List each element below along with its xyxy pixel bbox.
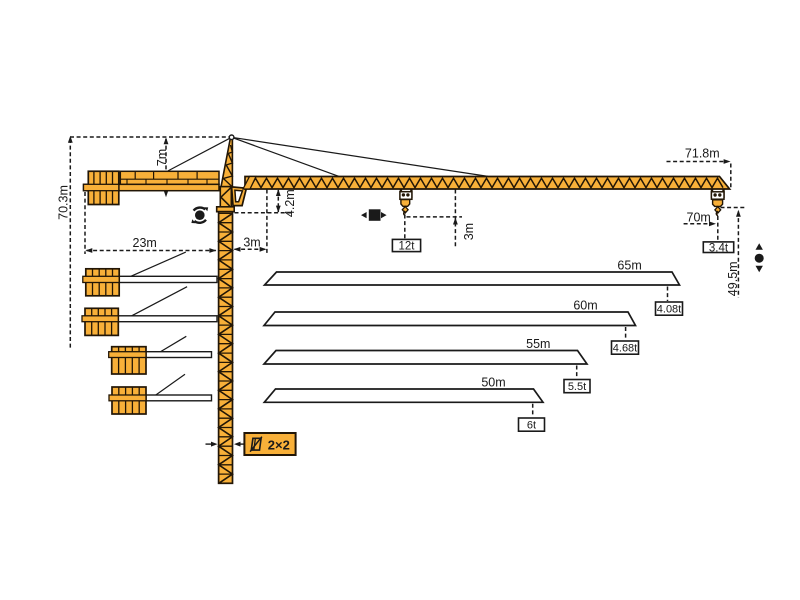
svg-text:4.68t: 4.68t	[613, 343, 637, 355]
svg-text:23m: 23m	[133, 236, 157, 250]
svg-text:6t: 6t	[527, 420, 536, 432]
svg-text:3m: 3m	[462, 223, 476, 240]
svg-text:4.2m: 4.2m	[283, 189, 297, 217]
svg-text:60m: 60m	[573, 299, 597, 313]
svg-text:7m: 7m	[155, 149, 169, 166]
svg-text:71.8m: 71.8m	[685, 147, 720, 161]
svg-text:3.4t: 3.4t	[709, 242, 729, 254]
svg-text:70.3m: 70.3m	[56, 185, 70, 220]
svg-text:50m: 50m	[481, 375, 505, 389]
svg-text:2×2: 2×2	[268, 438, 290, 453]
svg-text:5.5t: 5.5t	[568, 381, 586, 393]
svg-text:55m: 55m	[526, 337, 550, 351]
svg-text:70m: 70m	[687, 210, 711, 224]
svg-text:3m: 3m	[243, 235, 260, 249]
svg-text:65m: 65m	[617, 259, 641, 273]
svg-text:12t: 12t	[399, 241, 416, 253]
svg-text:4.08t: 4.08t	[657, 304, 681, 316]
svg-text:49.5m: 49.5m	[726, 261, 740, 296]
